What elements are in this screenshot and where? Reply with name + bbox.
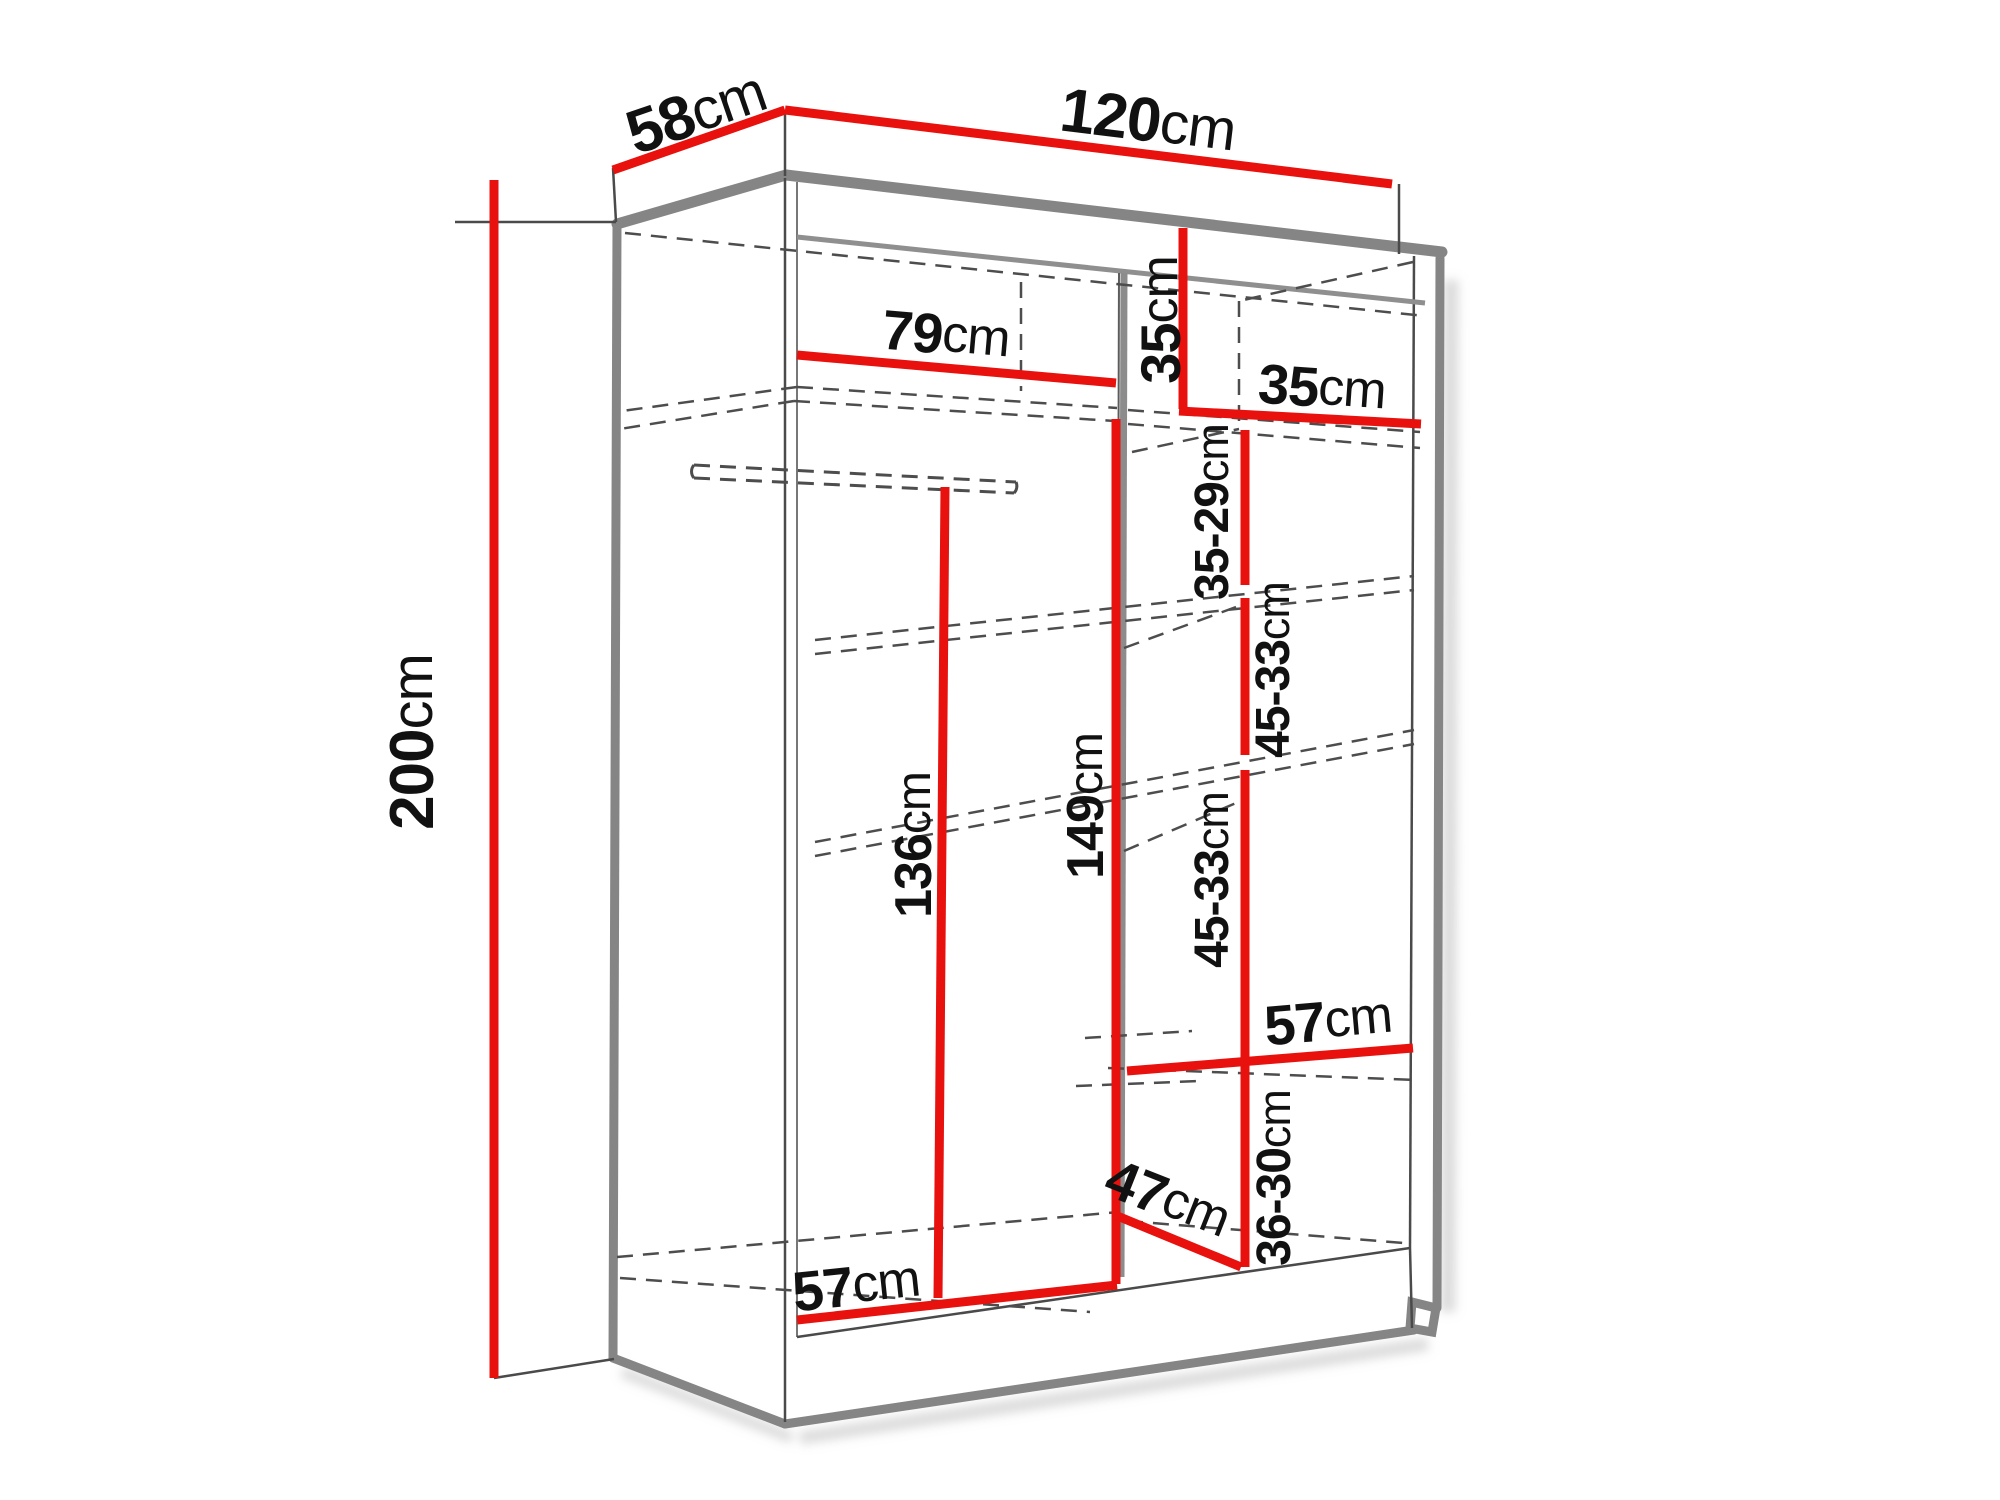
dim-label-left-width: 79cm	[880, 297, 1013, 371]
dim-label-total-width: 120cm	[1057, 75, 1240, 165]
dim-label-right-width: 57cm	[1262, 983, 1395, 1057]
dim-label-right-height: 149cm	[1057, 733, 1115, 879]
dim-label-cubby-width: 35cm	[1256, 351, 1388, 423]
cabinet-shadow	[622, 280, 1451, 1438]
dim-label-gap-45-33-b: 45-33cm	[1186, 792, 1239, 968]
dim-label-gap-45-33-a: 45-33cm	[1247, 582, 1300, 758]
dim-label-total-depth: 58cm	[617, 56, 774, 168]
wardrobe-dimension-diagram: 58cm 120cm 200cm 79cm 35cm 35cm 35-29cm …	[0, 0, 2000, 1500]
dim-label-gap-36-30: 36-30cm	[1248, 1090, 1301, 1266]
diagram-canvas: 58cm 120cm 200cm 79cm 35cm 35cm 35-29cm …	[0, 0, 2000, 1500]
hanging-rail	[692, 465, 1017, 493]
dim-label-gap-35-29: 35-29cm	[1186, 424, 1239, 600]
dim-label-total-height: 200cm	[378, 654, 447, 830]
dim-label-cubby-height: 35cm	[1129, 256, 1192, 384]
dim-label-hanging-height: 136cm	[885, 772, 943, 918]
